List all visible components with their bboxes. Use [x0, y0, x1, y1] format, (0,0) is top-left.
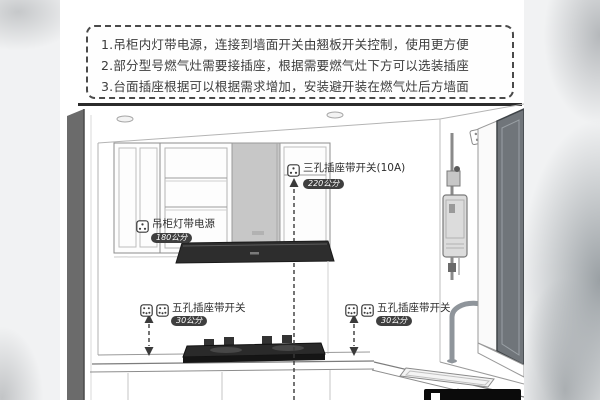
- height-badge: 30公分: [376, 316, 412, 326]
- note-line-2: 2.部分型号燃气灶需要接插座，根据需要燃气灶下方可以选装插座: [101, 55, 512, 76]
- annotation-label: 五孔插座带开关: [377, 302, 451, 315]
- ceiling-light-icon: [327, 112, 343, 118]
- height-badge: 180公分: [151, 233, 192, 243]
- water-heater: [443, 133, 467, 280]
- dimension-line-left-30cm: [145, 314, 154, 356]
- range-hood-duct: [232, 143, 280, 242]
- height-badge: 30公分: [171, 316, 207, 326]
- window: [478, 109, 524, 377]
- range-hood: [176, 241, 334, 263]
- upper-cabinets: [114, 143, 330, 257]
- socket-icon: [140, 302, 153, 315]
- gas-stove: [183, 335, 325, 363]
- screenshot-root: 1.吊柜内灯带电源，连接到墙面开关由翘板开关控制，使用更方便 2.部分型号燃气灶…: [0, 0, 600, 400]
- note-line-3: 3.台面插座根据可以根据需求增加，安装避开装在燃气灶后方墙面: [101, 76, 512, 97]
- annotation-label: 吊柜灯带电源: [152, 218, 215, 231]
- watermark-logo: [424, 389, 521, 400]
- annotation-label: 五孔插座带开关: [172, 302, 246, 315]
- annotation-five-hole-socket-left: 五孔插座带开关: [140, 302, 246, 315]
- door-frame: [67, 109, 98, 400]
- annotation-five-hole-socket-right: 五孔插座带开关: [345, 302, 451, 315]
- note-line-1: 1.吊柜内灯带电源，连接到墙面开关由翘板开关控制，使用更方便: [101, 34, 512, 55]
- socket-icon: [287, 162, 300, 175]
- socket-icon: [361, 302, 374, 315]
- sink: [400, 368, 494, 387]
- annotation-label: 三孔插座带开关(10A): [303, 162, 405, 175]
- notes-box: 1.吊柜内灯带电源，连接到墙面开关由翘板开关控制，使用更方便 2.部分型号燃气灶…: [86, 25, 514, 99]
- dimension-line-right-30cm: [350, 314, 359, 356]
- ceiling-light-icon: [117, 116, 133, 122]
- kitchen-line-drawing: [66, 103, 524, 400]
- socket-icon: [345, 302, 358, 315]
- socket-icon: [136, 218, 149, 231]
- height-badge: 220公分: [303, 179, 344, 189]
- watermark-glyph: [431, 393, 440, 400]
- socket-icon: [156, 302, 169, 315]
- annotation-three-hole-socket: 三孔插座带开关(10A): [287, 162, 405, 175]
- annotation-cabinet-light-power: 吊柜灯带电源: [136, 218, 215, 231]
